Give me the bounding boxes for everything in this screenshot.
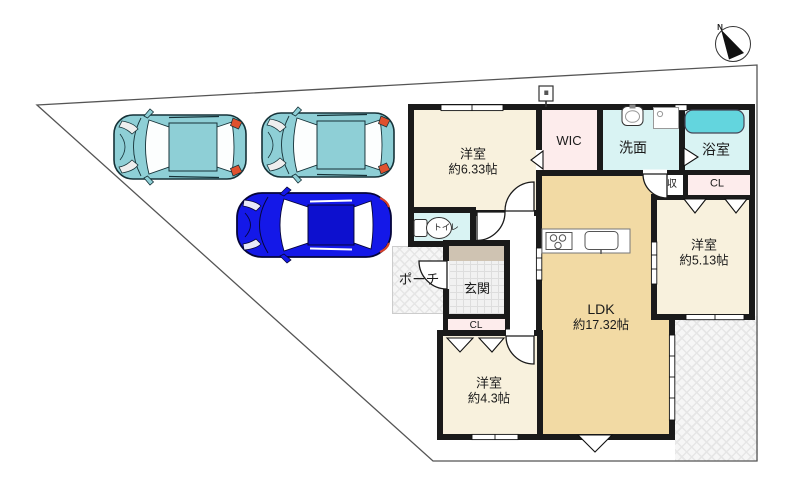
room-label-toilet: トイレ (433, 222, 459, 232)
room-label-bedroom-43: 洋室 約4.3帖 (468, 376, 510, 407)
room-name: CL (470, 320, 483, 331)
room-label-closet-lower: CL (470, 320, 483, 332)
car-1 (114, 109, 246, 185)
room-name: 収 (667, 179, 677, 190)
entrance-step (449, 246, 504, 261)
room-label-washroom: 洗面 (619, 140, 647, 157)
room-label-wic: WIC (556, 133, 581, 149)
room-label-bedroom-633: 洋室 約6.33帖 (448, 147, 497, 178)
room-label-bedroom-513: 洋室 約5.13帖 (679, 238, 728, 269)
room-name: 洋室 (460, 147, 486, 162)
room-size: 約17.32帖 (573, 318, 629, 333)
terrace-area (675, 316, 758, 461)
room-name: 玄関 (464, 281, 490, 296)
room-label-ldk: LDK 約17.32帖 (573, 301, 629, 333)
room-bathroom (679, 104, 755, 176)
room-name: WIC (556, 133, 581, 148)
room-name: LDK (587, 301, 614, 317)
room-name: 洗面 (619, 140, 647, 156)
compass-north-label: N (717, 23, 723, 33)
car-2 (262, 107, 394, 183)
room-label-bathroom: 浴室 (702, 142, 730, 159)
room-name: 洋室 (476, 376, 502, 391)
floor-plan-canvas: 洋室 約6.33帖 WIC 洗面 浴室 収 CL 洋室 約5.13帖 LDK 約… (0, 0, 800, 485)
room-size: 約4.3帖 (468, 391, 510, 406)
room-name: 浴室 (702, 142, 730, 158)
room-label-porch: ポーチ (399, 272, 440, 288)
room-label-storage: 収 (667, 179, 677, 191)
room-label-closet-upper: CL (710, 177, 724, 190)
room-label-entrance: 玄関 (464, 281, 490, 297)
room-name: ポーチ (399, 272, 440, 287)
car-3-blue (237, 187, 391, 263)
room-name: CL (710, 177, 724, 189)
north-letter: N (717, 23, 723, 32)
room-name: 洋室 (691, 238, 717, 253)
room-size: 約5.13帖 (679, 253, 728, 268)
room-name: トイレ (433, 222, 459, 232)
room-size: 約6.33帖 (448, 162, 497, 177)
